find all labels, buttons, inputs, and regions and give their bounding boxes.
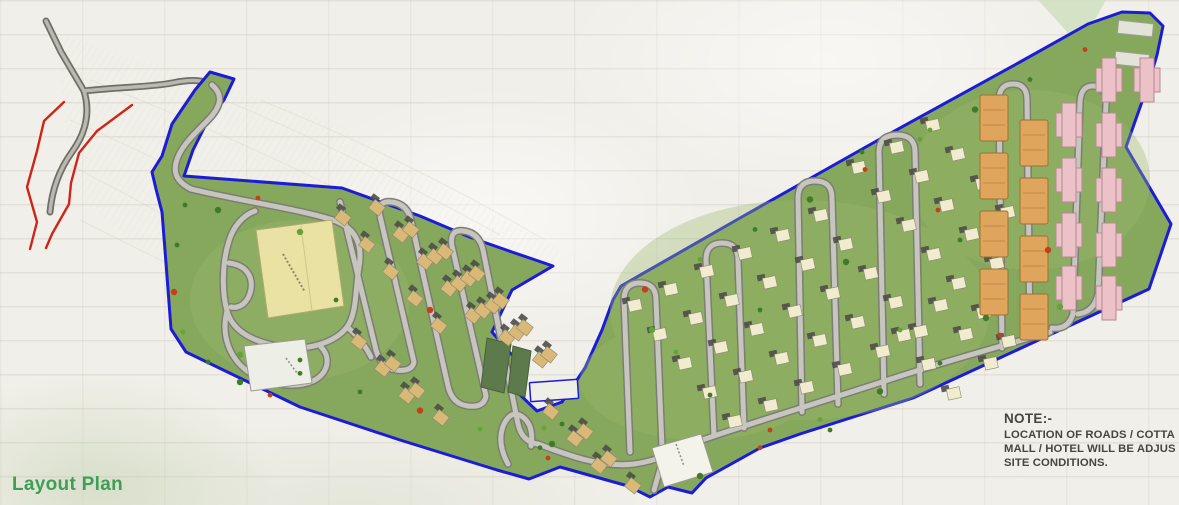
note-line: MALL / HOTEL WILL BE ADJUS: [1004, 442, 1176, 456]
tree-green: [828, 428, 833, 433]
tree-red: [1045, 247, 1051, 253]
tree-green: [297, 229, 303, 235]
tree-green: [1057, 304, 1063, 310]
tree-green: [181, 330, 186, 335]
tree-green: [542, 426, 547, 431]
tree-green: [674, 350, 679, 355]
tree-green: [898, 328, 903, 333]
tree-green: [298, 358, 303, 363]
tree-green: [983, 315, 989, 321]
mall-building: [244, 339, 312, 391]
tree-green: [938, 361, 943, 366]
tree-red: [1083, 47, 1088, 52]
tree-red: [427, 307, 433, 313]
tower-orange: [1020, 236, 1048, 282]
tree-green: [478, 427, 483, 432]
tower-orange: [980, 269, 1008, 315]
tower-orange: [980, 95, 1008, 141]
tree-green: [697, 473, 703, 479]
tree-green: [298, 371, 303, 376]
tree-green: [215, 207, 221, 213]
tree-green: [918, 137, 923, 142]
tree-red: [768, 428, 773, 433]
tree-green: [708, 393, 713, 398]
tree-green: [753, 227, 758, 232]
page-title: Layout Plan: [12, 474, 123, 496]
tower-orange: [980, 153, 1008, 199]
tree-green: [1028, 77, 1033, 82]
tree-green: [758, 308, 763, 313]
tree-red: [936, 208, 941, 213]
tree-green: [928, 128, 933, 133]
tree-green: [972, 106, 978, 112]
tree-green: [334, 298, 339, 303]
tree-green: [358, 390, 363, 395]
tree-green: [560, 422, 565, 427]
tree-green: [807, 196, 813, 202]
tree-red: [171, 289, 177, 295]
tree-green: [818, 417, 823, 422]
tree-red: [642, 286, 648, 292]
layout-plan-canvas: Layout Plan NOTE:- LOCATION OF ROADS / C…: [0, 0, 1179, 505]
tree-green: [549, 441, 555, 447]
tree-green: [538, 445, 543, 450]
tree-red: [268, 393, 273, 398]
note-line: LOCATION OF ROADS / COTTA: [1004, 428, 1176, 442]
tree-red: [417, 407, 423, 413]
site-plan-drawing: [0, 0, 1179, 505]
tree-red: [546, 456, 551, 461]
tree-green: [183, 203, 188, 208]
tower-orange: [1020, 178, 1048, 224]
tree-green: [237, 379, 243, 385]
utility-building: [529, 379, 578, 401]
tree-green: [237, 352, 243, 358]
tower-orange: [1020, 120, 1048, 166]
tower-orange: [980, 211, 1008, 257]
tree-green: [843, 259, 849, 265]
tree-green: [958, 238, 963, 243]
tree-green: [649, 327, 655, 333]
tree-red: [863, 167, 868, 172]
tree-green: [877, 388, 883, 394]
tower-orange: [1020, 294, 1048, 340]
tree-red: [758, 445, 763, 450]
site-note: NOTE:- LOCATION OF ROADS / COTTA MALL / …: [1004, 411, 1176, 470]
tree-red: [998, 333, 1003, 338]
tree-green: [175, 243, 180, 248]
cottage-cream: [941, 383, 962, 401]
note-heading: NOTE:-: [1004, 411, 1176, 426]
tree-green: [860, 150, 865, 155]
tree-red: [256, 196, 261, 201]
note-line: SITE CONDITIONS.: [1004, 456, 1176, 470]
tree-green: [698, 257, 703, 262]
tree-green: [206, 360, 211, 365]
